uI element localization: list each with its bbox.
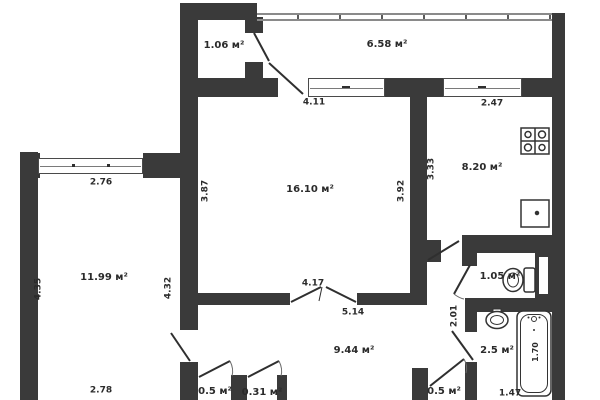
plan-overlay	[0, 0, 600, 400]
wall-living-bottom-right	[357, 293, 427, 305]
wall-wc-left-jamb	[462, 253, 477, 266]
wall-living-kitchen	[410, 88, 427, 300]
door-leaf-wc	[454, 265, 470, 294]
room-label-kitchen: 8.20 м²	[462, 163, 503, 173]
door-arc-closet-left	[230, 361, 233, 376]
dim-hall-top: 5.14	[342, 309, 364, 318]
door-leaf-closet-right	[430, 359, 464, 386]
duct-shaft	[539, 257, 548, 294]
wall-kitchen-bottom	[462, 235, 552, 253]
dim-tub-length: 1.70	[532, 342, 540, 362]
door-leaf-closet-mid	[248, 361, 279, 377]
dim-bedroom-left: 4.35	[35, 278, 44, 300]
wall-bathroom-left-upper	[465, 312, 477, 332]
wall-living-bottom-left	[197, 293, 290, 305]
wall-closet-pier-3	[412, 368, 428, 400]
room-label-wc: 1.05 м²	[480, 272, 521, 282]
dim-bedroom-bottom: 2.78	[90, 387, 112, 396]
room-label-closet-right: 0.5 м²	[427, 387, 461, 397]
window-tick	[342, 86, 350, 88]
room-label-bathroom: 2.5 м²	[480, 346, 514, 356]
door-arc-wc	[454, 294, 464, 299]
room-label-bedroom: 11.99 м²	[80, 273, 128, 283]
dim-bath-bottom: 1.47	[499, 390, 521, 399]
wall-bedroom-top-left	[20, 153, 40, 178]
dim-living-door: 4.17	[302, 280, 324, 289]
floor-plan: 1.06 м² 6.58 м² 16.10 м² 8.20 м² 11.99 м…	[0, 0, 600, 400]
door-arc-closet-mid	[279, 361, 282, 376]
door-leaf-closet-left	[199, 361, 230, 377]
window-tick	[107, 164, 110, 167]
dim-bedroom-right: 4.32	[165, 277, 174, 299]
room-label-balcony: 6.58 м²	[367, 40, 408, 50]
kitchen-sink-icon	[521, 200, 549, 227]
room-label-hallway: 9.44 м²	[334, 346, 375, 356]
room-label-closet-mid: 0.31 м²	[242, 388, 283, 398]
dim-top-window-living: 4.11	[303, 99, 325, 108]
door-leaf-living-center	[319, 287, 322, 301]
balcony-glazing	[257, 13, 552, 21]
stove-icon	[521, 128, 549, 154]
room-label-balcony-small: 1.06 м²	[204, 41, 245, 51]
wall-bathroom-left-lower	[465, 362, 477, 400]
dim-kitchen-left: 3.33	[428, 158, 437, 180]
door-leaf-bedroom	[171, 333, 190, 361]
wall-balcony-small-jamb-bottom	[245, 62, 263, 78]
wall-wc-bathroom-divider	[465, 298, 552, 312]
dim-living-left: 3.87	[202, 180, 211, 202]
dim-living-right: 3.92	[398, 180, 407, 202]
wall-balcony-pier-right	[522, 78, 552, 97]
wall-middle-vertical-lower	[180, 362, 198, 400]
dim-corridor: 2.01	[451, 305, 460, 327]
wall-middle-vertical	[180, 95, 198, 330]
dim-top-window-kitchen: 2.47	[481, 100, 503, 109]
window-tick	[72, 164, 75, 167]
wall-right-outer	[552, 13, 565, 400]
door-leaf-bathroom	[452, 331, 473, 360]
room-label-closet-left: 0.5 м²	[198, 387, 232, 397]
room-label-living-room: 16.10 м²	[286, 185, 334, 195]
door-leaf-balcony-small	[254, 33, 269, 61]
wall-left-outer	[20, 152, 38, 400]
dim-bedroom-window: 2.76	[90, 179, 112, 188]
door-leaf-living-double	[291, 287, 356, 302]
wall-kitchen-door-jamb	[427, 240, 441, 262]
window-tick	[478, 86, 486, 88]
bedroom-window	[38, 158, 143, 174]
